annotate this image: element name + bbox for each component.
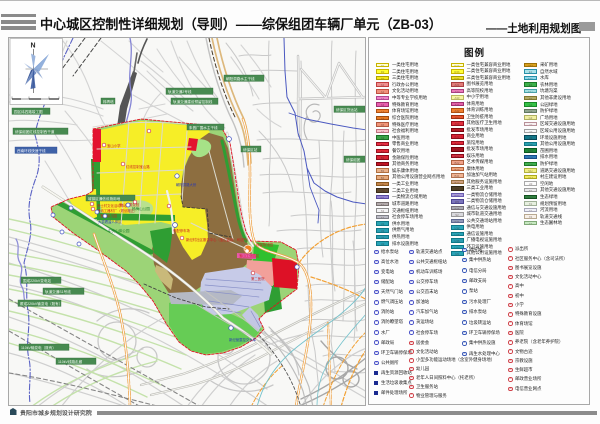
svg-text:综保组团红线控制西干道: 综保组团红线控制西干道 [15, 129, 55, 134]
svg-text:修配停车场: 修配停车场 [173, 228, 191, 233]
svg-text:园区纬四路竣工图: 园区纬四路竣工图 [14, 109, 43, 114]
svg-text:宝山小学: 宝山小学 [107, 143, 121, 148]
svg-text:宝山工业园区: 宝山工业园区 [239, 253, 260, 258]
svg-text:轨道交通2号线: 轨道交通2号线 [168, 89, 192, 94]
svg-text:覆成220kV输变电（既有）: 覆成220kV输变电（既有） [20, 301, 62, 306]
svg-text:朝阳洞路水主干线: 朝阳洞路水主干线 [226, 76, 255, 81]
svg-text:城镇区通信设施用地: 城镇区通信设施用地 [88, 196, 121, 201]
svg-text:第二医院: 第二医院 [251, 276, 265, 281]
svg-text:红线控制宝山路: 红线控制宝山路 [126, 164, 150, 169]
svg-text:大嘉看监么体区: 大嘉看监么体区 [98, 219, 122, 224]
svg-text:110kV输变电（既有）: 110kV输变电（既有） [21, 345, 56, 350]
svg-text:110kV线路走廊: 110kV线路走廊 [58, 359, 83, 364]
svg-text:杨梅山公园: 杨梅山公园 [132, 206, 150, 211]
svg-text:综保区站: 综保区站 [243, 147, 258, 152]
svg-text:综保区货运站: 综保区货运站 [336, 107, 358, 112]
svg-text:新纪村社区服务中心（宝山监狱、司法所）: 新纪村社区服务中心（宝山监狱、司法所） [186, 237, 250, 242]
svg-text:轨道交通建设预留控制线: 轨道交通建设预留控制线 [173, 99, 213, 104]
svg-text:中央山体公园: 中央山体公园 [108, 228, 130, 233]
svg-text:N: N [30, 42, 35, 49]
svg-text:围成220kV变电站: 围成220kV变电站 [23, 278, 51, 283]
svg-text:朝阳洞路大桥: 朝阳洞路大桥 [176, 182, 197, 187]
svg-text:梯青塔: 梯青塔 [103, 99, 114, 104]
svg-text:综保组团: 综保组团 [346, 157, 361, 162]
svg-text:朱昌厂围水主干线: 朱昌厂围水主干线 [189, 125, 218, 130]
svg-text:综保物流园: 综保物流园 [256, 242, 274, 247]
svg-text:西南环线快速干线: 西南环线快速干线 [17, 148, 46, 153]
svg-text:贵士村文化活动中心: 贵士村文化活动中心 [97, 203, 128, 208]
svg-text:宝山幼儿园: 宝山幼儿园 [100, 213, 118, 218]
svg-text:新纪营整控交水库: 新纪营整控交水库 [229, 337, 257, 342]
svg-text:轨道交通S1号线: 轨道交通S1号线 [45, 289, 71, 294]
